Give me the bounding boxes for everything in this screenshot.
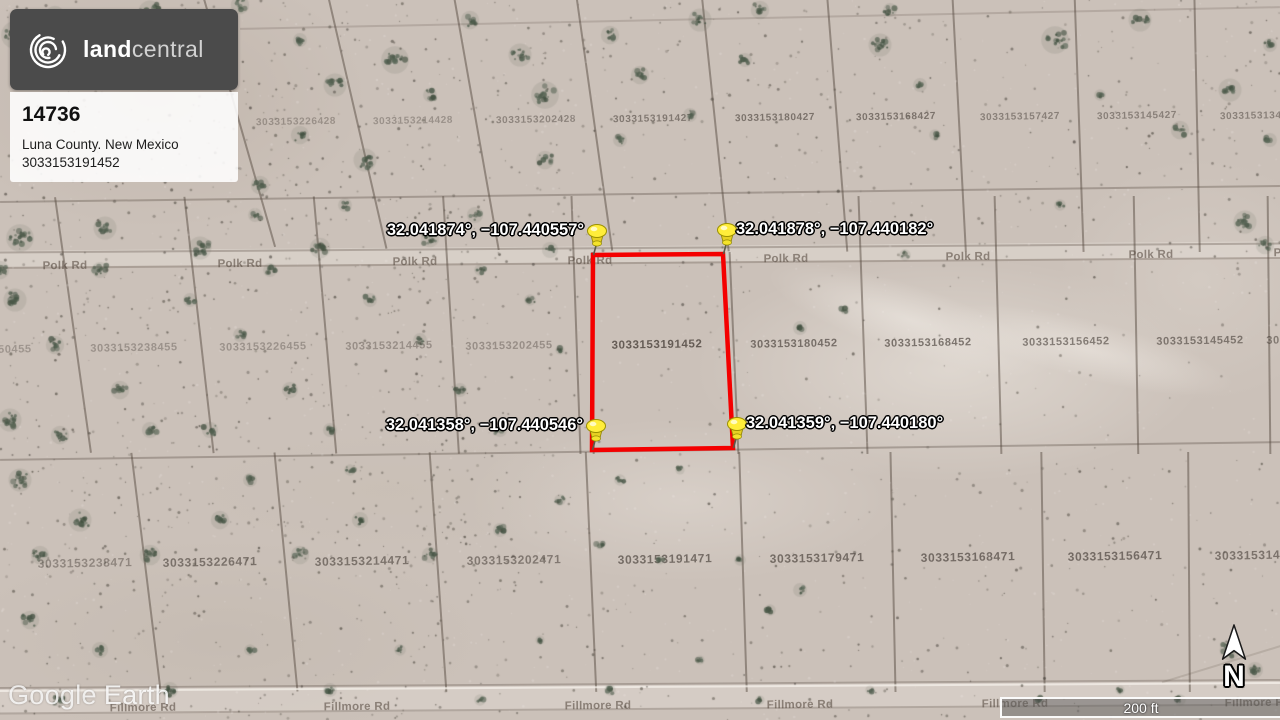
parcel-line xyxy=(575,0,613,251)
road-label: Fillmore Rd xyxy=(565,700,632,713)
parcel-number-label: 3033153179471 xyxy=(770,550,865,566)
parcel-line xyxy=(700,0,729,251)
parcel-line xyxy=(738,452,747,692)
road-label: Polk Rd xyxy=(42,260,87,272)
pin-coordinate-label: 32.041878°, −107.440182° xyxy=(736,220,933,239)
parcel-number-label: 3033153202471 xyxy=(467,552,562,568)
parcel-number-label: 3033153226455 xyxy=(219,340,307,354)
polk-road-surface xyxy=(0,241,1280,266)
parcel-number-label: 3033153156452 xyxy=(1022,335,1110,349)
road-label: Polk Rd xyxy=(945,251,990,263)
parcel-line xyxy=(1040,452,1045,692)
parcel-line xyxy=(826,0,848,252)
parcel-number-label: 3033153238455 xyxy=(90,341,178,355)
brand-wordmark: landcentral xyxy=(83,36,204,63)
parcel-line xyxy=(889,452,896,692)
landcentral-logo: landcentral xyxy=(10,9,238,90)
parcel-number-label: 3033153145471 xyxy=(1215,547,1280,563)
parcel-number-label: 3033153168452 xyxy=(884,336,972,350)
parcel-line xyxy=(313,196,337,453)
parcel-number-label: 3033153226428 xyxy=(256,116,336,128)
parcel-line xyxy=(1267,196,1271,454)
parcel-number-label: 3033153202428 xyxy=(496,114,576,126)
parcel-line xyxy=(0,243,1280,254)
parcel-line xyxy=(54,197,91,453)
parcel-line xyxy=(1133,196,1139,454)
pin-coordinate-label: 32.041874°, −107.440557° xyxy=(387,221,584,240)
listing-location: Luna County. New Mexico xyxy=(22,136,226,154)
road-label: Polk Rd xyxy=(1128,249,1173,261)
google-earth-watermark: GoogleEarth xyxy=(8,680,170,711)
pin-coordinate-label: 32.041359°, −107.440180° xyxy=(746,414,943,433)
parcel-number-label: 3033153157427 xyxy=(980,111,1060,123)
parcel-number-label: 3033153214455 xyxy=(345,339,433,353)
parcel-number-label: 3033153168471 xyxy=(921,549,1016,565)
scale-label: 200 ft xyxy=(1123,700,1158,716)
terrain-shading xyxy=(1060,160,1280,400)
parcel-number-label: 3033153134452 xyxy=(1266,333,1280,347)
parcel-number-label: 3033153191427 xyxy=(613,113,693,125)
landcentral-swirl-icon xyxy=(26,28,70,72)
road-label: Polk Rd xyxy=(392,256,437,268)
parcel-number-label: 3033153168427 xyxy=(856,111,936,123)
parcel-number-label: 3033153191452 xyxy=(611,338,702,352)
parcel-line xyxy=(452,0,499,250)
parcel-number-label: 3033153250455 xyxy=(0,343,32,357)
parcel-line xyxy=(1073,0,1084,252)
terrain-shading xyxy=(757,240,1064,399)
map-pin[interactable] xyxy=(584,418,610,452)
road-label: Polk Rd xyxy=(763,253,808,265)
north-letter: N xyxy=(1212,664,1256,690)
parcel-number-label: 3033153214428 xyxy=(373,115,453,127)
road-label: Fillmore Rd xyxy=(324,701,391,714)
parcel-number-label: 3033153156471 xyxy=(1068,548,1163,564)
parcel-number-label: 3033153134427 xyxy=(1220,110,1280,122)
listing-info-card: landcentral 14736 Luna County. New Mexic… xyxy=(10,9,238,182)
terrain-shading xyxy=(470,420,900,580)
parcel-line xyxy=(0,441,1280,461)
road-label: Polk Rd xyxy=(1273,247,1280,259)
parcel-number-label: 3033153145427 xyxy=(1097,110,1177,122)
parcel-number-label: 3033153180452 xyxy=(750,337,838,351)
parcel-number-label: 3033153180427 xyxy=(735,112,815,124)
listing-details: 14736 Luna County. New Mexico 3033153191… xyxy=(10,92,238,182)
parcel-number-label: 3033153145452 xyxy=(1156,334,1244,348)
listing-parcel-id: 3033153191452 xyxy=(22,154,226,172)
parcel-line xyxy=(1193,0,1200,252)
parcel-number-label: 3033153191471 xyxy=(618,551,713,567)
terrain-shading xyxy=(937,285,1243,416)
parcel-number-label: 3033153226471 xyxy=(163,554,258,570)
terrain-shading xyxy=(700,260,1200,480)
parcel-line xyxy=(994,196,1002,454)
map-viewport[interactable]: 3033153226428303315321442830331532024283… xyxy=(0,0,1280,720)
parcel-line xyxy=(951,0,966,252)
parcel-line xyxy=(240,6,1280,30)
parcel-line xyxy=(327,0,387,249)
map-pin[interactable] xyxy=(585,223,611,257)
north-arrow[interactable]: N xyxy=(1212,624,1256,690)
parcel-line xyxy=(0,185,1280,203)
parcel-number-label: 3033153214471 xyxy=(315,553,410,569)
parcel-number-label: 3033153202455 xyxy=(465,339,553,353)
parcel-line xyxy=(274,452,299,691)
road-edge-highlight xyxy=(0,681,1280,691)
parcel-number-label: 3033153238471 xyxy=(38,555,133,571)
north-arrow-icon xyxy=(1215,624,1253,662)
map-scale-bar: 200 ft xyxy=(1000,697,1280,718)
listing-id: 14736 xyxy=(22,103,226,127)
parcel-line xyxy=(130,453,161,691)
parcel-line xyxy=(585,452,597,692)
parcel-line xyxy=(1187,452,1190,692)
terrain-shading xyxy=(180,430,600,550)
road-label: Fillmore Rd xyxy=(767,699,834,712)
pin-coordinate-label: 32.041358°, −107.440546° xyxy=(386,416,583,435)
road-label: Polk Rd xyxy=(217,258,262,270)
parcel-line xyxy=(0,256,1280,268)
parcel-line xyxy=(183,197,214,454)
parcel-line xyxy=(429,452,447,692)
